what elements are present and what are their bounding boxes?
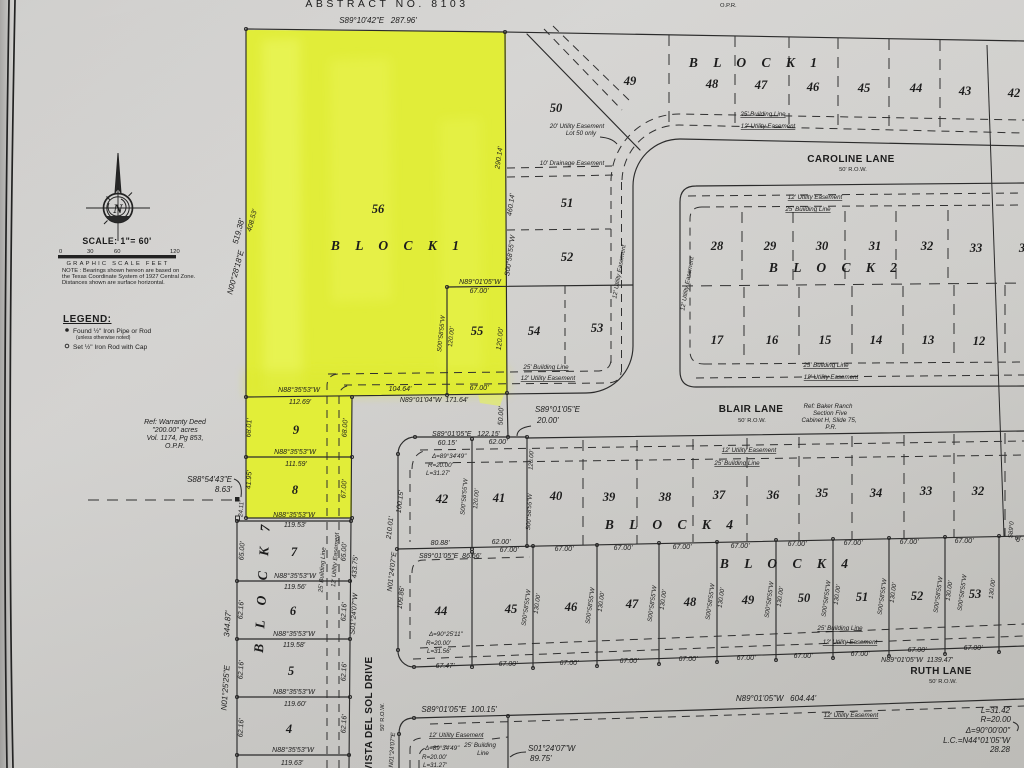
svg-text:32: 32	[920, 239, 934, 253]
svg-text:51: 51	[561, 196, 574, 210]
svg-text:67.00': 67.00'	[900, 539, 920, 546]
svg-text:40: 40	[549, 489, 563, 503]
svg-text:VISTA DEL SOL DRIVE: VISTA DEL SOL DRIVE	[364, 656, 375, 768]
svg-text:N: N	[112, 201, 123, 216]
svg-text:B L O C K 1: B L O C K 1	[688, 55, 823, 70]
svg-text:119.60': 119.60'	[284, 701, 307, 708]
svg-text:N88°35'53"W: N88°35'53"W	[274, 448, 317, 456]
svg-text:13: 13	[922, 333, 935, 347]
svg-text:N89°01'05"W 1139.47': N89°01'05"W 1139.47'	[881, 656, 953, 664]
svg-text:17: 17	[711, 333, 724, 347]
svg-text:Line: Line	[477, 750, 489, 757]
svg-text:119.63': 119.63'	[281, 760, 304, 767]
svg-text:24.11': 24.11'	[237, 500, 245, 518]
svg-text:53: 53	[969, 587, 982, 601]
svg-text:49: 49	[623, 74, 637, 88]
svg-text:8.63': 8.63'	[215, 485, 233, 494]
svg-text:8: 8	[292, 483, 299, 497]
svg-text:9: 9	[293, 423, 300, 437]
svg-text:7: 7	[291, 545, 298, 559]
svg-text:67.00': 67.00'	[470, 385, 490, 392]
svg-text:65.00': 65.00'	[238, 541, 246, 561]
svg-text:L=31.27': L=31.27'	[423, 762, 448, 768]
svg-text:R=20.00': R=20.00'	[428, 462, 454, 469]
svg-text:B L O C K 2: B L O C K 2	[768, 260, 903, 275]
svg-text:50: 50	[798, 591, 811, 605]
svg-text:33: 33	[919, 484, 933, 498]
svg-text:52: 52	[561, 250, 574, 264]
svg-text:67.00': 67.00'	[964, 645, 984, 652]
svg-text:60.15': 60.15'	[438, 440, 458, 447]
svg-text:62.16': 62.16'	[237, 600, 245, 620]
svg-text:67.00': 67.00'	[499, 661, 519, 668]
svg-text:L.C.=N44°01'05"W: L.C.=N44°01'05"W	[943, 736, 1011, 745]
svg-text:119.58': 119.58'	[283, 642, 306, 649]
svg-text:50' R.O.W.: 50' R.O.W.	[738, 418, 766, 424]
svg-text:Ref: Baker Ranch: Ref: Baker Ranch	[804, 403, 853, 410]
svg-text:CAROLINE LANE: CAROLINE LANE	[807, 154, 894, 165]
svg-text:Cabinet H, Slide 75,: Cabinet H, Slide 75,	[801, 417, 856, 424]
svg-text:36: 36	[766, 488, 780, 502]
svg-text:12' Utility Easement: 12' Utility Easement	[788, 194, 843, 201]
svg-text:46: 46	[564, 600, 578, 614]
svg-text:67.00': 67.00'	[555, 546, 575, 553]
svg-text:67.: 67.	[1015, 535, 1024, 542]
svg-text:L=31.42: L=31.42	[981, 706, 1011, 715]
svg-text:O.P.R.: O.P.R.	[165, 443, 185, 450]
svg-text:67.00': 67.00'	[731, 543, 751, 550]
svg-text:GRAPHIC SCALE FEET: GRAPHIC SCALE FEET	[66, 261, 169, 267]
svg-text:62.16': 62.16'	[340, 714, 348, 734]
svg-text:25' Building Line: 25' Building Line	[802, 362, 849, 369]
svg-text:119.56': 119.56'	[284, 584, 307, 591]
svg-text:52: 52	[911, 589, 924, 603]
svg-text:N89°01'05"W: N89°01'05"W	[459, 278, 502, 286]
svg-text:62.16': 62.16'	[340, 662, 348, 682]
svg-text:62.00': 62.00'	[489, 439, 509, 446]
svg-text:80.88': 80.88'	[431, 540, 451, 547]
svg-text:43: 43	[958, 84, 972, 98]
svg-text:50' R.O.W.: 50' R.O.W.	[380, 703, 386, 731]
svg-text:RUTH LANE: RUTH LANE	[910, 666, 971, 677]
svg-text:67.00': 67.00'	[908, 647, 928, 654]
svg-text:N88°35'53"W: N88°35'53"W	[274, 572, 317, 580]
svg-text:25' Building Line: 25' Building Line	[522, 364, 569, 371]
svg-text:45: 45	[504, 602, 518, 616]
svg-text:49: 49	[741, 593, 755, 607]
svg-text:20' Utility Easement: 20' Utility Easement	[549, 123, 605, 130]
svg-text:42: 42	[1007, 86, 1021, 100]
svg-text:62.16': 62.16'	[237, 718, 245, 738]
svg-text:4: 4	[285, 722, 292, 736]
svg-text:111.59': 111.59'	[285, 461, 307, 468]
svg-text:Distances shown are surface ho: Distances shown are surface horizontal.	[62, 280, 165, 286]
svg-text:35: 35	[815, 486, 829, 500]
svg-text:60: 60	[114, 249, 120, 255]
svg-text:67.00': 67.00'	[620, 658, 640, 665]
svg-text:44: 44	[909, 81, 923, 95]
svg-text:67.00': 67.00'	[788, 541, 808, 548]
svg-text:6: 6	[290, 604, 297, 618]
svg-text:120.00': 120.00'	[527, 449, 535, 470]
svg-text:104.64': 104.64'	[389, 386, 412, 393]
svg-text:12: 12	[973, 334, 986, 348]
svg-text:N89°01'05"W 604.44': N89°01'05"W 604.44'	[736, 694, 817, 703]
svg-text:S89°01'05"E 122.15': S89°01'05"E 122.15'	[432, 430, 501, 438]
svg-text:41: 41	[492, 491, 506, 505]
svg-text:S89°01'05"E: S89°01'05"E	[535, 405, 581, 414]
svg-text:41.95': 41.95'	[245, 470, 253, 490]
svg-text:N88°35'53"W: N88°35'53"W	[272, 746, 315, 754]
svg-text:Vol. 1174, Pg 853,: Vol. 1174, Pg 853,	[147, 435, 204, 442]
svg-text:R=20.00': R=20.00'	[422, 754, 448, 761]
svg-text:44: 44	[434, 604, 448, 618]
svg-text:16: 16	[766, 333, 779, 347]
svg-text:47: 47	[754, 78, 768, 92]
svg-text:R=20.00': R=20.00'	[426, 640, 452, 647]
svg-text:O.P.R.: O.P.R.	[720, 3, 737, 9]
svg-text:67.00': 67.00'	[673, 544, 693, 551]
svg-text:P.R.: P.R.	[825, 424, 836, 431]
svg-text:BLAIR LANE: BLAIR LANE	[719, 404, 784, 415]
svg-text:32: 32	[971, 484, 985, 498]
svg-text:37: 37	[712, 488, 726, 502]
svg-text:12' Utility Easement: 12' Utility Easement	[722, 447, 777, 454]
svg-text:S88°54'43"E: S88°54'43"E	[187, 475, 233, 484]
svg-text:67.00': 67.00'	[955, 538, 975, 545]
svg-text:67.00': 67.00'	[340, 479, 348, 499]
svg-text:3: 3	[1018, 241, 1024, 255]
svg-text:N88°35'53"W: N88°35'53"W	[273, 511, 316, 519]
svg-text:12' Utility Easement: 12' Utility Easement	[823, 639, 878, 646]
svg-text:28: 28	[710, 239, 724, 253]
svg-text:N88°35'53"W: N88°35'53"W	[273, 688, 316, 696]
svg-text:67.00': 67.00'	[844, 540, 864, 547]
svg-text:12' Utility Easement: 12' Utility Easement	[804, 374, 859, 381]
svg-text:67.00': 67.00'	[500, 547, 520, 554]
svg-text:25' Building Line: 25' Building Line	[713, 460, 760, 467]
svg-text:62.16': 62.16'	[340, 602, 348, 622]
svg-text:Δ=90°25'11": Δ=90°25'11"	[428, 631, 464, 638]
svg-text:Set ½" Iron Rod with Cap: Set ½" Iron Rod with Cap	[73, 343, 148, 351]
svg-text:(unless otherwise noted): (unless otherwise noted)	[76, 335, 131, 341]
svg-text:33: 33	[969, 241, 983, 255]
svg-text:67.00': 67.00'	[679, 656, 699, 663]
svg-text:12' Utility Easement: 12' Utility Easement	[824, 712, 879, 719]
svg-text:12' Utility Easement: 12' Utility Easement	[741, 123, 796, 130]
svg-text:34: 34	[869, 486, 883, 500]
svg-text:65.00': 65.00'	[340, 542, 348, 562]
svg-text:"200.00" acres: "200.00" acres	[152, 427, 198, 434]
svg-text:25' Building Line: 25' Building Line	[784, 206, 831, 213]
svg-text:38: 38	[658, 490, 672, 504]
svg-text:B L O C K 4: B L O C K 4	[719, 556, 854, 571]
svg-text:25' Building: 25' Building	[463, 742, 496, 749]
svg-text:112.69': 112.69'	[289, 399, 312, 406]
svg-text:20.00': 20.00'	[536, 416, 559, 425]
svg-text:15: 15	[819, 333, 832, 347]
svg-text:Section Five: Section Five	[813, 410, 848, 417]
svg-text:67.00': 67.00'	[794, 653, 814, 660]
svg-text:89.75': 89.75'	[530, 754, 552, 763]
svg-text:62.00': 62.00'	[492, 539, 512, 546]
svg-text:46: 46	[806, 80, 820, 94]
svg-text:31: 31	[868, 239, 882, 253]
svg-text:S89°10'42"E 287.96': S89°10'42"E 287.96'	[339, 16, 417, 25]
svg-text:12' Utility Easement: 12' Utility Easement	[429, 732, 484, 739]
svg-text:R=20.00: R=20.00	[981, 715, 1012, 724]
svg-text:30: 30	[87, 249, 93, 255]
svg-text:Found ½" Iron Pipe or Rod: Found ½" Iron Pipe or Rod	[73, 327, 152, 335]
svg-text:67.47': 67.47'	[436, 663, 456, 670]
svg-text:56: 56	[372, 202, 385, 216]
svg-text:N89°01'04"W 171.64': N89°01'04"W 171.64'	[400, 396, 469, 404]
svg-text:51: 51	[856, 590, 869, 604]
svg-text:Δ=89°34'49": Δ=89°34'49"	[424, 745, 460, 752]
svg-text:B L O C K 4: B L O C K 4	[604, 517, 739, 532]
svg-text:119.53': 119.53'	[284, 522, 307, 529]
svg-text:67.00': 67.00'	[470, 288, 490, 295]
svg-text:62.16': 62.16'	[237, 660, 245, 680]
svg-text:55: 55	[471, 324, 484, 338]
svg-text:68.00': 68.00'	[341, 418, 349, 438]
svg-text:120: 120	[170, 249, 180, 255]
svg-text:N88°35'53"W: N88°35'53"W	[273, 630, 316, 638]
svg-text:N88°35'53"W: N88°35'53"W	[278, 386, 321, 394]
svg-text:68.01': 68.01'	[245, 418, 253, 438]
svg-text:Lot 50 only: Lot 50 only	[566, 130, 597, 137]
svg-text:5: 5	[288, 664, 294, 678]
svg-text:Ref: Warranty Deed: Ref: Warranty Deed	[144, 419, 207, 426]
svg-text:67.00': 67.00'	[614, 545, 634, 552]
svg-text:54: 54	[528, 324, 541, 338]
svg-text:67.00': 67.00'	[851, 651, 871, 658]
svg-text:42: 42	[435, 492, 449, 506]
svg-text:29: 29	[763, 239, 777, 253]
svg-text:50.00': 50.00'	[498, 406, 506, 426]
svg-text:LEGEND:: LEGEND:	[63, 314, 112, 325]
svg-text:50' R.O.W.: 50' R.O.W.	[929, 679, 957, 685]
svg-text:S01°24'07"W: S01°24'07"W	[528, 744, 577, 753]
svg-text:S89°01'05"E 100.15': S89°01'05"E 100.15'	[421, 705, 497, 714]
svg-text:28.28: 28.28	[989, 745, 1011, 754]
svg-text:50' R.O.W.: 50' R.O.W.	[839, 167, 867, 173]
svg-text:L=31.56': L=31.56'	[427, 648, 452, 655]
svg-text:B L O C K 1: B L O C K 1	[330, 238, 465, 253]
svg-text:L=31.27': L=31.27'	[426, 470, 451, 477]
svg-text:344.87': 344.87'	[222, 610, 233, 637]
svg-text:25' Building Line: 25' Building Line	[816, 625, 863, 632]
svg-text:30: 30	[815, 239, 829, 253]
svg-text:45: 45	[857, 81, 871, 95]
svg-text:SCALE: 1"= 60': SCALE: 1"= 60'	[82, 236, 151, 246]
svg-text:10' Drainage Easement: 10' Drainage Easement	[540, 160, 605, 167]
svg-text:12' Utility Easement: 12' Utility Easement	[521, 375, 576, 382]
svg-text:67.00': 67.00'	[560, 660, 580, 667]
svg-text:14: 14	[870, 333, 883, 347]
svg-text:39: 39	[602, 490, 616, 504]
svg-text:Δ=90°00'00": Δ=90°00'00"	[965, 726, 1011, 735]
svg-text:53: 53	[591, 321, 604, 335]
svg-text:48: 48	[683, 595, 697, 609]
svg-text:Δ=89°34'49": Δ=89°34'49"	[431, 453, 467, 460]
svg-text:ABSTRACT NO. 8103: ABSTRACT NO. 8103	[305, 0, 468, 10]
svg-text:25' Building Line: 25' Building Line	[739, 111, 786, 118]
svg-text:0: 0	[59, 249, 62, 255]
svg-text:48: 48	[705, 77, 719, 91]
svg-text:50: 50	[550, 101, 563, 115]
svg-text:47: 47	[625, 597, 639, 611]
svg-text:67.00': 67.00'	[737, 655, 757, 662]
